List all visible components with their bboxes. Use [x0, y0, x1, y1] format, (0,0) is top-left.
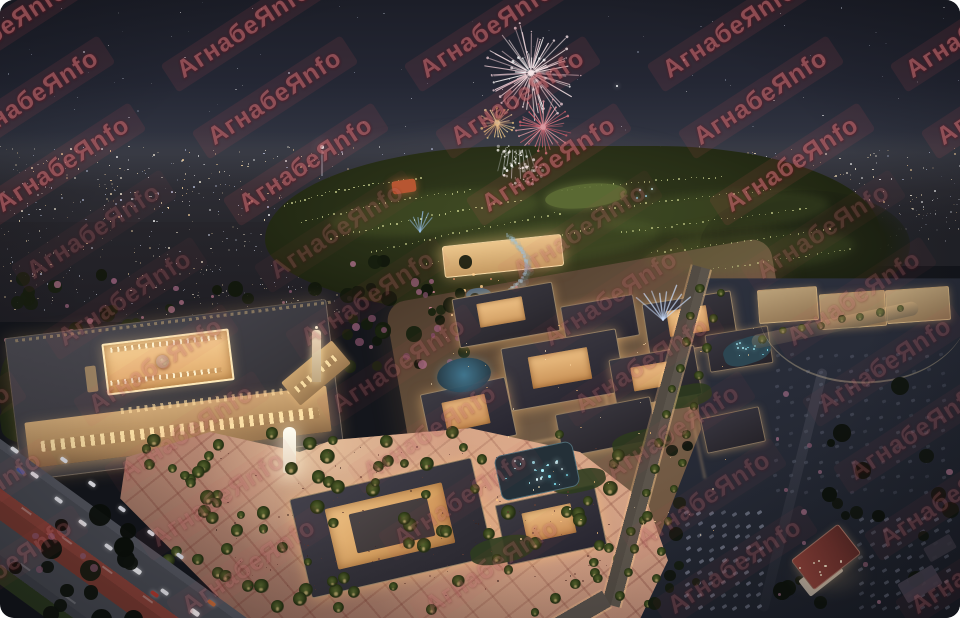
watermark-layer: АгнабеЯnfoАгнабеЯnfoАгнабеЯnfoАгнабеЯnfo… — [0, 0, 960, 618]
aerial-night-render: АгнабеЯnfoАгнабеЯnfoАгнабеЯnfoАгнабеЯnfo… — [0, 0, 960, 618]
watermark-text: АгнабеЯnfo — [889, 0, 960, 93]
watermark-text: АгнабеЯnfo — [0, 504, 89, 618]
